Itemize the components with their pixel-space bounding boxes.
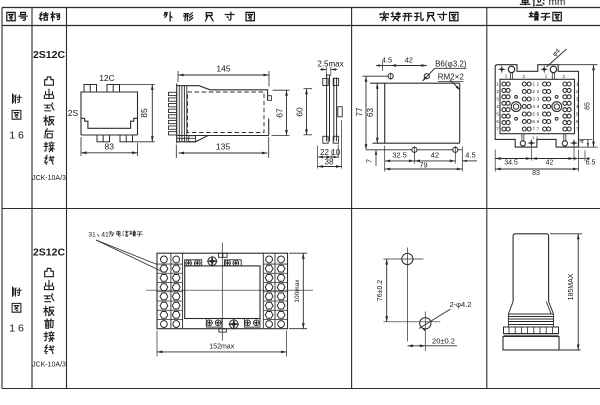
- svg-text:1 6: 1 6: [9, 130, 24, 142]
- svg-text:1: 1: [505, 74, 508, 79]
- svg-text:135: 135: [216, 142, 230, 152]
- svg-text:41: 41: [101, 232, 109, 239]
- svg-text:6: 6: [532, 119, 535, 124]
- svg-text:3: 3: [537, 97, 540, 102]
- svg-text:83: 83: [105, 141, 115, 151]
- svg-text:85: 85: [585, 102, 592, 110]
- svg-text:7: 7: [537, 127, 540, 132]
- svg-text:3: 3: [532, 97, 535, 102]
- svg-text:4.5: 4.5: [382, 56, 392, 65]
- svg-text:22: 22: [320, 148, 329, 157]
- svg-text:4: 4: [580, 139, 586, 143]
- svg-text:2: 2: [537, 89, 540, 94]
- svg-text:4: 4: [532, 104, 535, 109]
- svg-text:2-φ4.2: 2-φ4.2: [450, 300, 472, 309]
- svg-text:1 6: 1 6: [9, 323, 24, 335]
- svg-text:5: 5: [532, 112, 535, 117]
- svg-text:6: 6: [496, 119, 499, 124]
- svg-text:7: 7: [496, 127, 499, 132]
- svg-text:RM2×2: RM2×2: [438, 73, 465, 82]
- svg-text:7: 7: [365, 159, 374, 163]
- svg-text:185MAX: 185MAX: [568, 273, 575, 300]
- svg-text:φ4: φ4: [551, 47, 562, 58]
- svg-text:31: 31: [88, 232, 96, 239]
- svg-text:32.5: 32.5: [392, 151, 407, 160]
- svg-text:1: 1: [532, 82, 535, 87]
- svg-text:79: 79: [419, 160, 427, 169]
- svg-text:2S: 2S: [68, 108, 79, 118]
- svg-text:6: 6: [537, 119, 540, 124]
- svg-text:152max: 152max: [209, 344, 234, 351]
- svg-text:77: 77: [355, 107, 364, 116]
- svg-text:6.5: 6.5: [586, 160, 596, 167]
- svg-text:5: 5: [537, 112, 540, 117]
- svg-text:42: 42: [431, 151, 439, 160]
- svg-text:4.5: 4.5: [465, 151, 475, 160]
- svg-text:2S12C: 2S12C: [33, 49, 66, 61]
- svg-text:4: 4: [537, 104, 540, 109]
- svg-text:1 2: 1 2: [533, 136, 538, 140]
- svg-text:1: 1: [537, 82, 540, 87]
- svg-text:2S12C: 2S12C: [33, 247, 66, 259]
- svg-text:2: 2: [523, 74, 526, 79]
- svg-text:mm: mm: [549, 0, 566, 8]
- svg-text:145: 145: [216, 64, 230, 74]
- svg-text:10: 10: [331, 148, 340, 157]
- svg-text:3: 3: [496, 97, 499, 102]
- svg-text:76±0.2: 76±0.2: [377, 280, 384, 301]
- svg-text:2: 2: [563, 74, 566, 79]
- svg-text:1: 1: [545, 74, 548, 79]
- svg-text:2: 2: [496, 89, 499, 94]
- svg-text:83: 83: [532, 170, 540, 177]
- svg-text:42: 42: [405, 56, 413, 65]
- svg-text:4: 4: [496, 104, 499, 109]
- svg-text:7: 7: [532, 127, 535, 132]
- svg-text:63: 63: [366, 108, 375, 117]
- svg-text:42: 42: [546, 160, 554, 167]
- svg-text:1: 1: [496, 82, 499, 87]
- svg-text:12C: 12C: [99, 73, 115, 83]
- svg-text:67: 67: [275, 108, 285, 118]
- svg-text:B6(φ3.2): B6(φ3.2): [435, 59, 467, 68]
- svg-text:JCK-10A/3: JCK-10A/3: [32, 362, 66, 369]
- svg-text:JCK-10A/3: JCK-10A/3: [32, 175, 66, 182]
- svg-text:38: 38: [325, 157, 334, 166]
- svg-text:100max: 100max: [294, 279, 301, 303]
- svg-text:34.5: 34.5: [504, 160, 518, 167]
- svg-text:20±0.2: 20±0.2: [432, 336, 455, 345]
- svg-text:2: 2: [532, 89, 535, 94]
- svg-text:60: 60: [294, 107, 304, 117]
- svg-text:5: 5: [496, 112, 499, 117]
- svg-text:85: 85: [139, 108, 149, 118]
